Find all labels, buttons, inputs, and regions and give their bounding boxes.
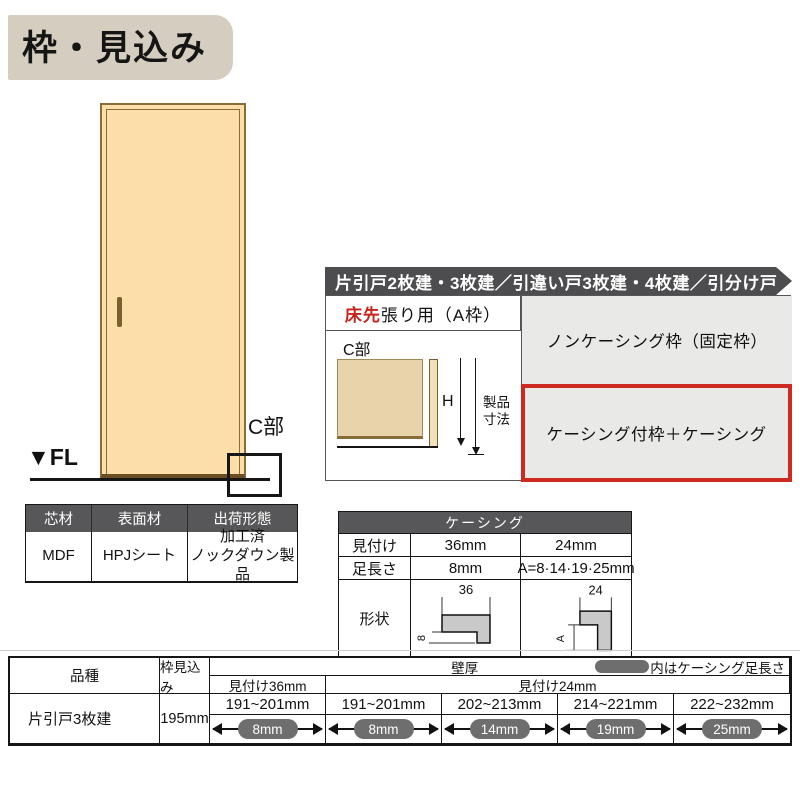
svg-text:8: 8	[416, 635, 428, 641]
wall-range: 214~221mm	[558, 694, 673, 715]
ashinagasa-24: A=8·14·19·25mm	[521, 557, 631, 579]
wall-thickness-table: 品種 枠見込み 壁厚 内はケーシング足長さ 見付け36mm 見付け24mm 片引…	[8, 656, 792, 746]
material-table: 芯材 表面材 出荷形態 MDF HPJシート 加工済 ノックダウン製品	[25, 504, 298, 583]
ashinagasa-36: 8mm	[411, 557, 521, 579]
page-title: 枠・見込み	[8, 15, 233, 80]
casing-table-title: ケーシング	[339, 512, 631, 533]
mitsuke-24: 24mm	[521, 534, 631, 556]
wall-range: 202~213mm	[442, 694, 557, 715]
arrow-left-icon	[328, 723, 338, 735]
svg-text:24: 24	[589, 582, 603, 597]
arrow-right-icon	[661, 723, 671, 735]
casing-leg-pill: 25mm	[702, 719, 762, 739]
legend-pill-icon	[595, 660, 649, 673]
arrow-left-icon	[676, 723, 686, 735]
surface-material-value: HPJシート	[92, 532, 188, 581]
shape-row: 形状 36 8 24	[339, 579, 631, 656]
casing-24-profile-icon: 24 A	[521, 581, 631, 655]
frame-depth-cell: 195mm	[160, 694, 210, 744]
mitsuke-row: 見付け 36mm 24mm	[339, 533, 631, 556]
surface-material-header: 表面材	[92, 505, 188, 532]
ashinagasa-label: 足長さ	[339, 557, 411, 579]
wall-cell-2: 191~201mm 8mm	[326, 694, 442, 744]
wall-arrow: 19mm	[558, 715, 673, 743]
core-material-value: MDF	[26, 532, 92, 581]
legend-text: 内はケーシング足長さ	[650, 657, 785, 677]
c-part-detail-diagram: C部 H 製品 寸法	[326, 331, 521, 481]
wall-cell-4: 214~221mm 19mm	[558, 694, 674, 744]
legend: 内はケーシング足長さ	[595, 657, 785, 677]
casing-leg-pill: 8mm	[354, 719, 414, 739]
arrow-right-icon	[313, 723, 323, 735]
arrow-left-icon	[444, 723, 454, 735]
wall-arrow: 25mm	[674, 715, 790, 743]
product-dimension-label: 製品 寸法	[483, 394, 510, 428]
door-handle	[117, 297, 122, 327]
casing-leg-pill: 19mm	[586, 719, 646, 739]
shape-24-cell: 24 A	[521, 580, 631, 656]
casing-leg-pill: 14mm	[470, 719, 530, 739]
option-noncasing-frame: ノンケーシング枠（固定枠）	[521, 296, 792, 385]
svg-text:36: 36	[458, 582, 472, 597]
casing-36-profile-icon: 36 8	[412, 581, 520, 655]
diagram-c-label: C部	[343, 336, 371, 360]
wall-range: 222~232mm	[674, 694, 790, 715]
wall-range: 191~201mm	[210, 694, 325, 715]
shipping-form-value: 加工済 ノックダウン製品	[188, 532, 297, 581]
diagram-floor-line	[337, 446, 438, 448]
door-kind-cell: 片引戸3枚建	[10, 694, 160, 744]
wall-cell-5: 222~232mm 25mm	[674, 694, 790, 744]
wall-arrow: 8mm	[326, 715, 441, 743]
h-dimension-line	[460, 358, 461, 444]
subheader-mitsuke24: 見付け24mm	[326, 676, 790, 694]
spec-sheet-page: 枠・見込み ▼FL C部 芯材 表面材 出荷形態 MDF HPJシート 加工済 …	[0, 0, 800, 800]
arrow-right-icon	[429, 723, 439, 735]
shape-label: 形状	[339, 580, 411, 656]
casing-table: ケーシング 見付け 36mm 24mm 足長さ 8mm A=8·14·19·25…	[338, 511, 632, 657]
h-dimension-arrow	[457, 438, 465, 446]
wall-range: 191~201mm	[326, 694, 441, 715]
arrow-left-icon	[212, 723, 222, 735]
door-illustration	[100, 103, 246, 480]
floor-level-label: ▼FL	[27, 444, 78, 471]
subheader-mitsuke36: 見付け36mm	[210, 676, 326, 694]
c-part-callout-rect	[227, 453, 282, 497]
h-dimension-label: H	[442, 393, 454, 411]
mitsuke-36: 36mm	[411, 534, 521, 556]
diagram-frame-strip	[429, 359, 438, 448]
wall-thickness-header: 壁厚 内はケーシング足長さ	[210, 658, 790, 676]
floor-first-red-text: 床先	[345, 301, 381, 326]
arrow-left-icon	[560, 723, 570, 735]
frame-options-section: 床先張り用（A枠） C部 H 製品 寸法 ノンケーシング枠（固定枠） ケーシング…	[325, 295, 791, 481]
core-material-header: 芯材	[26, 505, 92, 532]
svg-text:A: A	[555, 634, 567, 642]
door-panel-frame	[106, 109, 240, 474]
diagram-door-panel	[337, 359, 423, 439]
shape-36-cell: 36 8	[411, 580, 521, 656]
wall-arrow: 8mm	[210, 715, 325, 743]
option-casing-frame-selected: ケーシング付枠＋ケーシング	[521, 384, 792, 482]
floor-first-rest-text: 張り用（A枠）	[381, 301, 501, 326]
arrow-right-icon	[778, 723, 788, 735]
ashinagasa-row: 足長さ 8mm A=8·14·19·25mm	[339, 556, 631, 579]
material-table-row: MDF HPJシート 加工済 ノックダウン製品	[26, 532, 297, 581]
door-type-banner: 片引戸2枚建・3枚建／引違い戸3枚建・4枚建／引分け戸	[325, 267, 792, 295]
wall-arrow: 14mm	[442, 715, 557, 743]
kind-column-header: 品種	[10, 658, 160, 694]
section-divider-line	[0, 650, 800, 651]
product-dimension-tick	[468, 454, 484, 455]
wall-thickness-label: 壁厚	[451, 657, 478, 677]
c-part-label: C部	[248, 411, 284, 441]
mitsuke-label: 見付け	[339, 534, 411, 556]
wall-cell-1: 191~201mm 8mm	[210, 694, 326, 744]
arrow-right-icon	[545, 723, 555, 735]
wall-cell-3: 202~213mm 14mm	[442, 694, 558, 744]
frame-depth-column-header: 枠見込み	[160, 658, 210, 694]
casing-leg-pill: 8mm	[238, 719, 298, 739]
floor-first-header: 床先張り用（A枠）	[326, 296, 521, 331]
product-dimension-line	[475, 358, 476, 453]
